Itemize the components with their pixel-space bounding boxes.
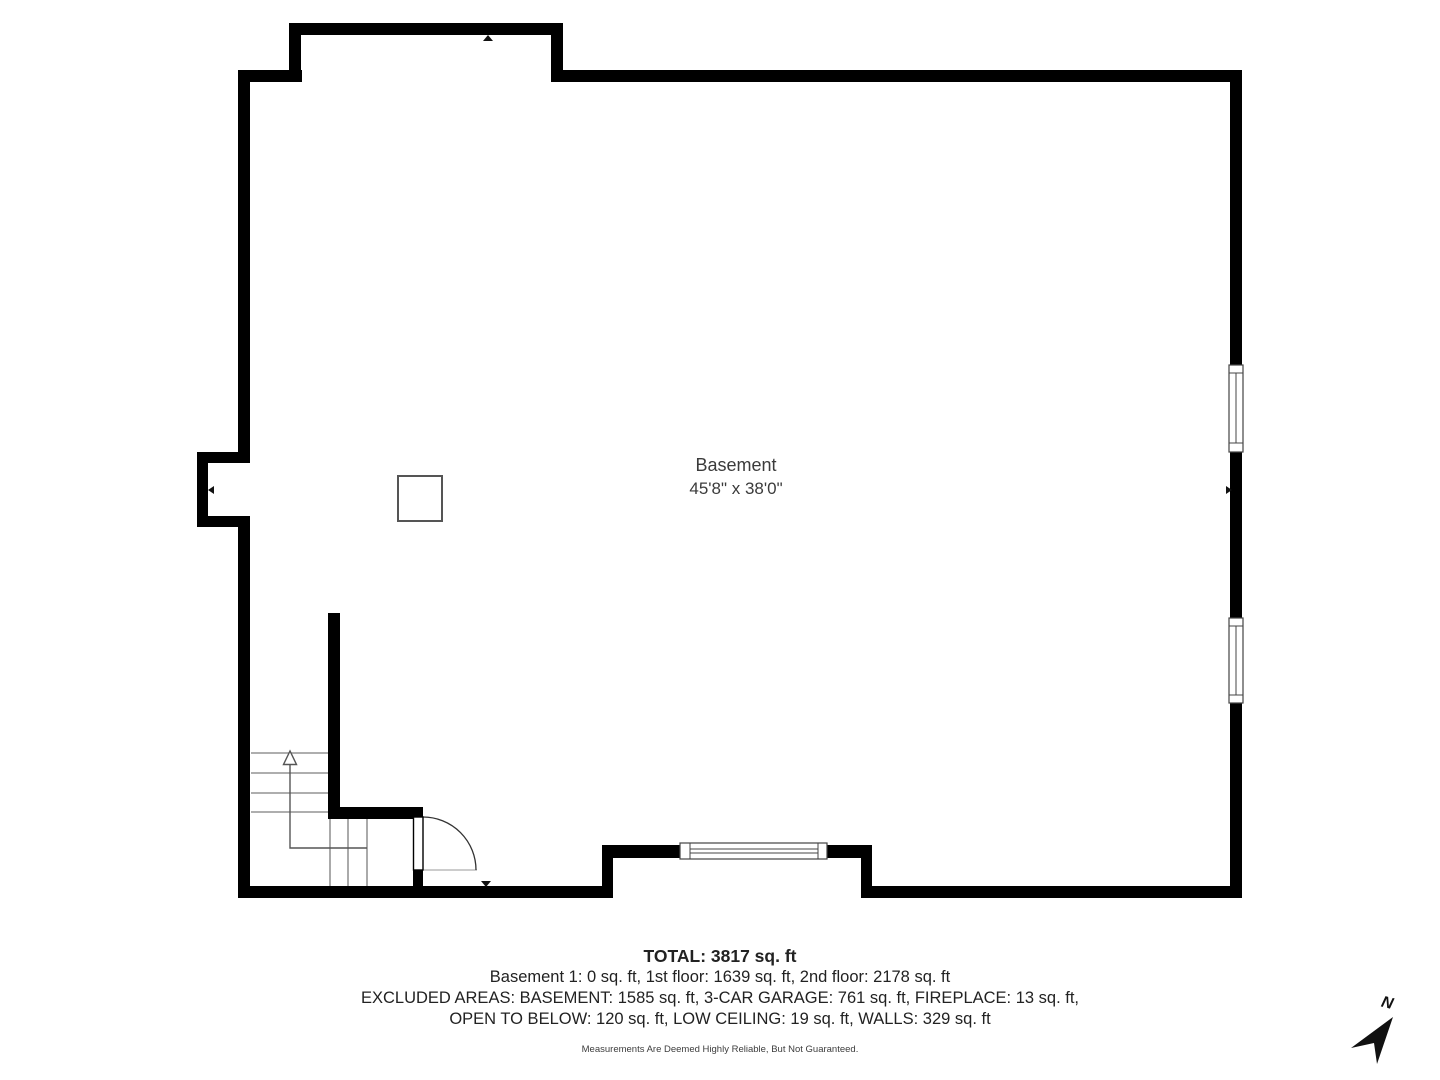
stair-direction-arrow bbox=[284, 751, 368, 848]
summary-disclaimer: Measurements Are Deemed Highly Reliable,… bbox=[0, 1044, 1440, 1056]
floor-plan-drawing bbox=[0, 0, 1440, 1080]
wall-notch-left bbox=[197, 452, 208, 527]
summary-floors: Basement 1: 0 sq. ft, 1st floor: 1639 sq… bbox=[0, 967, 1440, 988]
staircase bbox=[251, 753, 367, 886]
room-dimensions: 45'8" x 38'0" bbox=[536, 477, 936, 500]
wall-bump-top bbox=[289, 23, 563, 35]
interior-walls bbox=[328, 613, 423, 887]
summary-total: TOTAL: 3817 sq. ft bbox=[0, 945, 1440, 967]
wall-left-lower bbox=[238, 527, 250, 898]
window-bottom bbox=[680, 843, 827, 859]
wall-stair-vertical bbox=[328, 613, 340, 819]
room-name: Basement bbox=[536, 454, 936, 477]
summary-excluded-line2: OPEN TO BELOW: 120 sq. ft, LOW CEILING: … bbox=[0, 1009, 1440, 1030]
floor-plan-page: Basement 45'8" x 38'0" TOTAL: 3817 sq. f… bbox=[0, 0, 1440, 1080]
area-summary: TOTAL: 3817 sq. ft Basement 1: 0 sq. ft,… bbox=[0, 945, 1440, 1056]
wall-left-upper bbox=[238, 70, 250, 452]
door bbox=[414, 817, 478, 870]
wall-right-upper bbox=[1230, 70, 1242, 365]
summary-excluded-line1: EXCLUDED AREAS: BASEMENT: 1585 sq. ft, 3… bbox=[0, 988, 1440, 1009]
door-leaf bbox=[414, 817, 424, 870]
wall-stair-horizontal bbox=[328, 807, 423, 819]
marker-left-icon bbox=[208, 486, 214, 494]
wall-door-stub bbox=[413, 869, 423, 887]
wall-notch-bottom bbox=[197, 516, 250, 527]
wall-bottom-right bbox=[861, 886, 1242, 898]
marker-top-up-icon bbox=[483, 35, 493, 41]
wall-bottom-left bbox=[238, 886, 613, 898]
wall-recess-left-part bbox=[602, 845, 681, 858]
door-swing-arc bbox=[423, 817, 476, 870]
room-label: Basement 45'8" x 38'0" bbox=[536, 454, 936, 500]
wall-right-middle bbox=[1230, 452, 1242, 618]
wall-right-lower bbox=[1230, 703, 1242, 898]
window-right-upper bbox=[1229, 365, 1243, 452]
wall-top-right bbox=[551, 70, 1242, 82]
window-right-lower bbox=[1229, 618, 1243, 703]
structural-post bbox=[398, 476, 442, 521]
